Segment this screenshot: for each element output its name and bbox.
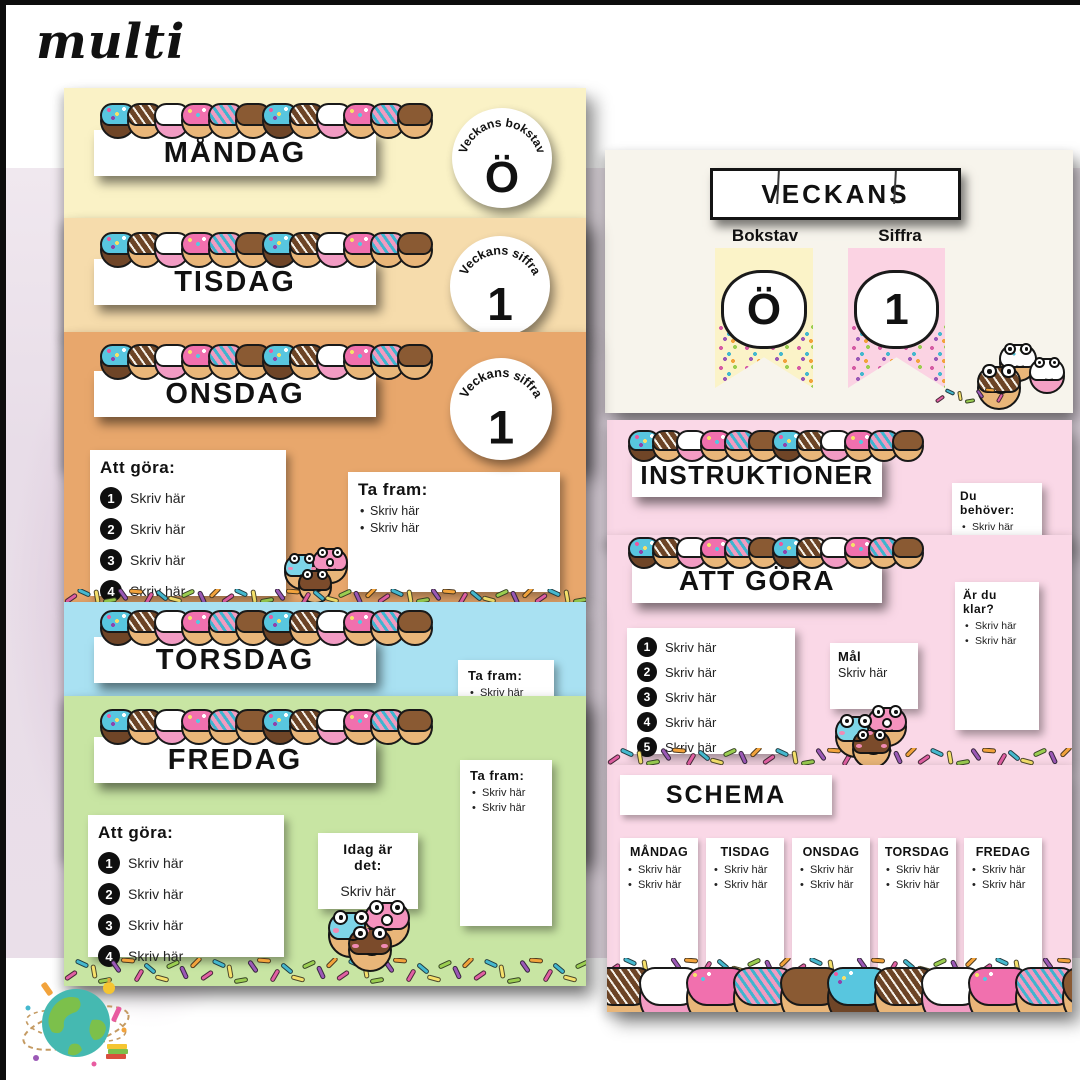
donut-border-row [636,430,924,462]
donut-icon [397,232,433,268]
sprinkle-icon [775,748,790,757]
bullet-item: Skriv här [970,879,1036,891]
bullet-item: Skriv här [470,787,542,799]
donut-character-icon [852,730,891,769]
bullet-item: Skriv här [963,620,1031,632]
badge-curved-label: Veckans bokstav [456,115,549,155]
sprinkle-icon [469,589,483,602]
number-badge: 2 [98,883,120,905]
sprinkle-icon [1056,958,1070,964]
schedule-day-column: TISDAG Skriv här Skriv här [706,838,784,976]
todo-box-att-gora: 1 Skriv här 2 Skriv här 3 Skriv här 4 Sk… [627,628,795,754]
box-heading: Mål [838,649,910,664]
sprinkle-icon [671,748,685,754]
letter-pennant-value: Ö [721,270,807,348]
sprinkle-icon [338,589,353,599]
donut-icon [892,430,924,462]
sprinkle-icon [353,590,363,602]
sprinkle-icon [438,959,453,969]
schema-title-banner: SCHEMA [620,775,832,815]
sprinkle-icon [660,748,672,761]
bullet-item: Skriv här [884,864,950,876]
sprinkle-icon [542,968,553,983]
day-title: TORSDAG [156,644,314,677]
bullet-item: Skriv här [712,864,778,876]
todo-box-friday: Att göra: 1 Skriv här 2 Skriv här 3 Skri… [88,815,284,957]
box-heading: Du behöver: [960,489,1034,517]
sprinkle-icon [749,748,762,758]
bullet-item: Skriv här [963,635,1031,647]
day-title: MÅNDAG [164,137,307,170]
sprinkle-icon [996,393,1004,404]
sprinkle-icon [143,962,157,975]
sprinkle-icon [499,964,506,979]
numbered-item: 2 Skriv här [637,662,785,682]
sprinkle-icon [738,751,748,765]
donut-border-row [100,232,433,268]
number-pennant: 1 [848,248,945,388]
att-gora-title: ATT GÖRA [679,565,835,597]
item-text: Skriv här [982,864,1025,876]
item-text: Skriv här [982,879,1025,891]
number-pennant-label: Siffra [855,226,945,246]
sprinkle-icon [220,593,234,602]
sprinkle-icon [226,964,233,979]
donut-border-row [100,344,433,380]
slide-schema: SCHEMA MÅNDAG Skriv här Skriv här TISDAG… [607,765,1072,1012]
sprinkle-icon [75,958,90,968]
multi-brand-logo: multi [36,14,185,70]
sprinkle-icon [574,959,586,969]
day-title: FREDAG [168,744,302,777]
item-text: Skriv här [724,879,767,891]
donut-character-icon [348,928,392,972]
donut-border-row [100,709,433,745]
sprinkle-icon [563,589,570,602]
sprinkle-icon [257,958,271,964]
bullet-item: Skriv här [626,879,692,891]
donut-icon [397,709,433,745]
sprinkle-icon [965,398,976,404]
sprinkle-icon [546,589,561,598]
column-day-label: ONSDAG [798,845,864,859]
sprinkle-icon [315,965,325,980]
sprinkle-icon [117,589,129,602]
sprinkle-icon [312,589,326,602]
badge-value: 1 [487,278,513,330]
sprinkle-icon [427,974,442,982]
numbered-item: 1 Skriv här [637,637,785,657]
item-text: Skriv här [665,640,716,655]
number-badge: 4 [637,712,657,732]
number-badge: 2 [637,662,657,682]
numbered-item: 3 Skriv här [100,549,276,571]
sprinkle-icon [563,974,578,982]
numbered-item: 1 Skriv här [98,852,274,874]
today-value: Skriv här [328,883,408,899]
slide-friday: FREDAG Att göra: 1 Skriv här 2 Skriv här… [64,696,586,986]
donut-characters [835,707,911,765]
badge-value: 1 [488,402,514,454]
sprinkle-icon [154,974,169,982]
donut-border-row [636,537,924,569]
item-text: Skriv här [130,490,185,506]
item-text: Skriv här [896,879,939,891]
donut-icon [892,537,924,569]
item-text: Skriv här [810,864,853,876]
number-badge: 2 [100,518,122,540]
sprinkle-icon [1033,748,1048,758]
donut-border-row [100,610,433,646]
sprinkle-border [64,958,586,986]
week-number-badge: Veckans siffra 1 [450,358,552,460]
sprinkle-icon [286,589,300,595]
numbered-item: 3 Skriv här [637,687,785,707]
sprinkle-icon [129,589,143,595]
sprinkle-icon [710,757,725,765]
box-heading: Är du klar? [963,588,1031,616]
numbered-item: 1 Skriv här [100,487,276,509]
sprinkle-icon [815,748,827,761]
donut-icon [397,103,433,139]
sprinkle-icon [684,958,698,964]
donut-border-large [607,964,1072,1012]
box-heading: Ta fram: [470,768,542,783]
bullet-item: Skriv här [470,802,542,814]
item-text: Skriv här [638,864,681,876]
schedule-day-column: FREDAG Skriv här Skriv här [964,838,1042,976]
sprinkle-icon [430,589,442,602]
sprinkle-icon [336,970,350,982]
sprinkle-icon [509,590,519,602]
box-heading: Idag är det: [328,841,408,873]
item-text: Skriv här [896,864,939,876]
bullet-item: Skriv här [626,864,692,876]
slide-wednesday: ONSDAG Veckans siffra 1 Att göra: 1 Skri… [64,332,586,602]
sprinkle-icon [506,976,521,983]
column-day-label: TISDAG [712,845,778,859]
schema-title: SCHEMA [666,781,786,810]
sprinkle-icon [144,591,155,602]
sprinkle-icon [370,976,385,983]
schedule-day-column: TORSDAG Skriv här Skriv här [878,838,956,976]
sprinkle-icon [270,968,281,983]
sprinkle-icon [280,962,294,975]
sprinkle-icon [200,970,214,982]
slide-instructions: INSTRUKTIONER Du behöver: Skriv här Skri… [607,420,1072,545]
sprinkle-icon [636,750,643,765]
sprinkle-icon [762,754,776,765]
donut-icon [1062,967,1072,1012]
bullet-item: Skriv här [358,521,550,535]
veckans-title-banner: VECKANS [710,168,961,220]
sprinkle-icon [552,962,566,975]
item-text: Skriv här [665,715,716,730]
sprinkle-icon [179,965,189,980]
sprinkle-icon [442,589,456,595]
sprinkle-icon [196,590,206,602]
instructions-title: INSTRUKTIONER [640,460,873,491]
sprinkle-icon [946,750,953,765]
sprinkle-icon [208,589,221,599]
sprinkle-icon [521,589,534,599]
day-title: TISDAG [174,266,296,299]
sprinkle-icon [917,754,931,765]
sprinkle-icon [1048,751,1058,765]
donut-border-row [100,103,433,139]
number-badge: 1 [637,637,657,657]
sprinkle-icon [791,750,798,765]
numbered-item: 4 Skriv här [637,712,785,732]
day-title: ONSDAG [165,378,304,411]
sprinkle-icon [534,593,548,602]
svg-text:Veckans bokstav: Veckans bokstav [456,115,549,155]
bullet-item: Skriv här [884,879,950,891]
sprinkle-icon [461,958,474,969]
numbered-item: 3 Skriv här [98,914,274,936]
week-letter-badge: Veckans bokstav Ö [452,108,552,208]
sprinkle-icon [121,958,135,964]
item-text: Skriv här [128,886,183,902]
donut-character-icon [1029,358,1065,394]
sprinkle-icon [300,591,311,602]
column-day-label: FREDAG [970,845,1036,859]
badge-curved-label: Veckans siffra [456,365,546,401]
sprinkle-icon [529,958,543,964]
sprinkle-icon [452,965,462,980]
image-top-border [0,0,1080,5]
sprinkle-icon [1059,748,1072,758]
svg-text:Veckans siffra: Veckans siffra [457,243,544,278]
image-left-border [0,0,6,1080]
bullet-item: Skriv här [358,504,550,518]
sprinkle-icon [250,589,257,602]
item-text: Skriv här [972,521,1013,533]
item-text: Skriv här [130,552,185,568]
sprinkle-icon [1020,757,1035,765]
sprinkle-icon [981,748,995,754]
item-text: Skriv här [975,635,1016,647]
numbered-item: 2 Skriv här [100,518,276,540]
veckans-title: VECKANS [761,179,909,210]
item-text: Skriv här [665,665,716,680]
number-badge: 1 [98,852,120,874]
sprinkle-icon [457,591,468,602]
badge-curved-label: Veckans siffra [457,243,544,278]
sprinkle-icon [390,589,405,598]
numbered-item: 2 Skriv här [98,883,274,905]
sprinkle-icon [233,589,248,598]
sprinkle-icon [274,589,286,602]
sprinkle-icon [472,970,486,982]
donut-characters [328,902,412,968]
number-badge: 3 [637,687,657,707]
schedule-day-column: ONSDAG Skriv här Skriv här [792,838,870,976]
item-text: Skriv här [724,864,767,876]
sprinkle-icon [930,748,945,757]
sprinkle-icon [935,394,945,403]
sprinkle-icon [416,962,430,975]
letter-pennant: Ö [715,248,813,388]
sprinkle-icon [302,959,317,969]
sprinkle-icon [686,752,697,765]
item-text: Skriv här [975,620,1016,632]
sprinkle-icon [945,388,956,396]
sprinkle-icon [970,748,982,761]
globe-logo [14,968,140,1081]
item-text: Skriv här [810,879,853,891]
item-text: Skriv här [482,787,525,799]
column-day-label: MÅNDAG [626,845,692,859]
sprinkle-icon [155,589,169,602]
today-box-friday: Idag är det: Skriv här [318,833,418,909]
box-heading: Att göra: [100,458,276,478]
bring-box-friday: Ta fram: Skriv här Skriv här [460,760,552,926]
sprinkle-icon [364,589,377,599]
sprinkle-icon [870,958,884,964]
sprinkle-icon [64,593,78,602]
column-day-label: TORSDAG [884,845,950,859]
sprinkle-icon [77,589,92,598]
letter-pennant-label: Bokstav [720,226,810,246]
sprinkle-icon [607,754,621,765]
sprinkle-icon [377,593,391,602]
sprinkle-icon [189,958,202,969]
badge-value: Ö [485,153,519,202]
box-heading: Ta fram: [358,480,550,500]
item-text: Skriv här [638,879,681,891]
slide-att-gora: ATT GÖRA 1 Skriv här 2 Skriv här 3 Skriv… [607,535,1072,765]
slide-veckans: VECKANS Bokstav Siffra Ö 1 [605,150,1073,413]
bullet-item: Skriv här [712,879,778,891]
sprinkle-icon [211,958,226,968]
sprinkle-icon [93,589,100,602]
item-text: Skriv här [370,521,419,535]
sprinkle-icon [620,748,635,757]
sprinkle-border [64,589,586,602]
sprinkle-icon [407,589,414,602]
bring-box-wednesday: Ta fram: Skriv här Skriv här [348,472,560,592]
todo-box-wednesday: Att göra: 1 Skriv här 2 Skriv här 3 Skri… [90,450,286,596]
sprinkle-icon [975,388,984,398]
item-text: Skriv här [130,521,185,537]
schedule-day-column: MÅNDAG Skriv här Skriv här [620,838,698,976]
item-text: Skriv här [665,690,716,705]
bullet-item: Skriv här [970,864,1036,876]
item-text: Skriv här [128,855,183,871]
bullet-item: Skriv här [960,521,1034,533]
sprinkle-icon [483,958,498,968]
week-number-badge: Veckans siffra 1 [450,236,550,336]
donut-icon [397,344,433,380]
sprinkle-icon [723,748,738,758]
number-badge: 1 [100,487,122,509]
goal-box: Mål Skriv här [830,643,918,709]
sprinkle-icon [996,752,1007,765]
goal-value: Skriv här [838,666,910,680]
number-badge: 3 [98,914,120,936]
sprinkle-icon [291,974,306,982]
sprinkle-icon [406,968,417,983]
sprinkle-icon [234,976,249,983]
item-text: Skriv här [128,917,183,933]
sprinkle-icon [181,589,196,599]
donut-icon [397,610,433,646]
number-pennant-value: 1 [854,270,939,348]
svg-text:Veckans siffra: Veckans siffra [456,365,546,401]
item-text: Skriv här [482,802,525,814]
bullet-item: Skriv här [798,864,864,876]
done-box: Är du klar? Skriv här Skriv här [955,582,1039,730]
bullet-item: Skriv här [798,879,864,891]
sprinkle-icon [494,589,509,599]
box-heading: Ta fram: [468,668,544,683]
number-badge: 3 [100,549,122,571]
sprinkle-icon [957,391,963,402]
item-text: Skriv här [370,504,419,518]
box-heading: Att göra: [98,823,274,843]
